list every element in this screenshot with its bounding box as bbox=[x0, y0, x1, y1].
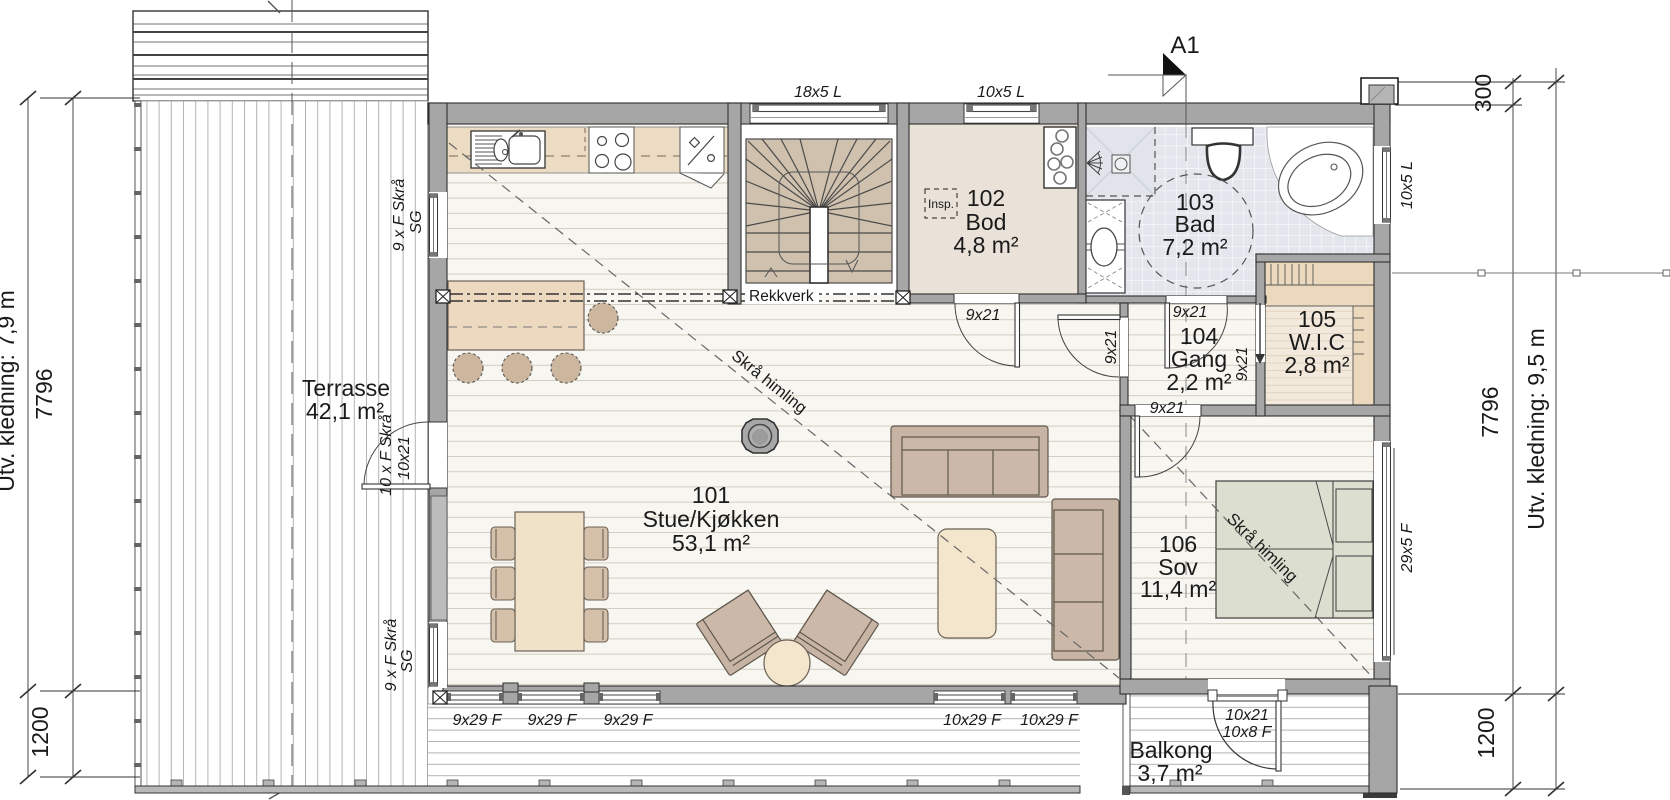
svg-text:9x21: 9x21 bbox=[1103, 330, 1120, 365]
svg-text:300: 300 bbox=[1470, 74, 1496, 112]
svg-text:9x21: 9x21 bbox=[1234, 347, 1251, 382]
svg-text:2,2 m²: 2,2 m² bbox=[1166, 369, 1232, 395]
svg-text:9x21: 9x21 bbox=[1173, 304, 1208, 321]
svg-text:7796: 7796 bbox=[1477, 386, 1503, 437]
svg-text:2,8 m²: 2,8 m² bbox=[1284, 352, 1350, 378]
svg-text:Utv. kledning: 9,5 m: Utv. kledning: 9,5 m bbox=[1523, 328, 1549, 530]
svg-text:11,4 m²: 11,4 m² bbox=[1140, 576, 1217, 602]
svg-text:102: 102 bbox=[967, 185, 1005, 211]
svg-text:Stue/Kjøkken: Stue/Kjøkken bbox=[643, 506, 780, 532]
svg-text:10x5 L: 10x5 L bbox=[977, 84, 1025, 101]
svg-text:9x21: 9x21 bbox=[966, 307, 1001, 324]
svg-text:10 x F Skrå: 10 x F Skrå bbox=[377, 414, 395, 496]
svg-text:10x21: 10x21 bbox=[1225, 707, 1269, 724]
svg-text:9 x F Skrå: 9 x F Skrå bbox=[382, 619, 400, 692]
svg-text:Insp.: Insp. bbox=[928, 197, 954, 211]
svg-text:9x29 F: 9x29 F bbox=[528, 712, 578, 729]
svg-text:7,2 m²: 7,2 m² bbox=[1162, 234, 1228, 260]
svg-text:9x21: 9x21 bbox=[1150, 400, 1185, 417]
svg-text:1200: 1200 bbox=[1473, 707, 1499, 758]
svg-text:3,7 m²: 3,7 m² bbox=[1137, 760, 1203, 786]
svg-text:Utv. kledning: 7,9 m: Utv. kledning: 7,9 m bbox=[0, 290, 19, 492]
svg-text:53,1 m²: 53,1 m² bbox=[672, 530, 750, 556]
svg-text:9 x F Skrå: 9 x F Skrå bbox=[390, 179, 408, 252]
svg-text:A1: A1 bbox=[1170, 32, 1199, 59]
svg-text:9x29 F: 9x29 F bbox=[604, 712, 654, 729]
svg-text:7796: 7796 bbox=[31, 368, 57, 419]
svg-text:10x21: 10x21 bbox=[396, 436, 413, 480]
svg-text:42,1 m²: 42,1 m² bbox=[306, 398, 384, 424]
svg-text:10x29 F: 10x29 F bbox=[943, 712, 1002, 729]
svg-text:4,8 m²: 4,8 m² bbox=[953, 232, 1019, 258]
svg-text:9x29 F: 9x29 F bbox=[453, 712, 503, 729]
svg-text:18x5 L: 18x5 L bbox=[794, 84, 842, 101]
svg-text:1200: 1200 bbox=[27, 706, 53, 757]
svg-text:SG: SG bbox=[399, 649, 416, 672]
svg-text:SG: SG bbox=[408, 210, 425, 233]
svg-text:10x29 F: 10x29 F bbox=[1020, 712, 1079, 729]
svg-text:101: 101 bbox=[692, 482, 730, 508]
svg-text:Rekkverk: Rekkverk bbox=[749, 288, 814, 305]
svg-text:10x5 L: 10x5 L bbox=[1399, 161, 1416, 209]
svg-text:10x8 F: 10x8 F bbox=[1223, 724, 1273, 741]
svg-text:29x5 F: 29x5 F bbox=[1399, 522, 1416, 573]
